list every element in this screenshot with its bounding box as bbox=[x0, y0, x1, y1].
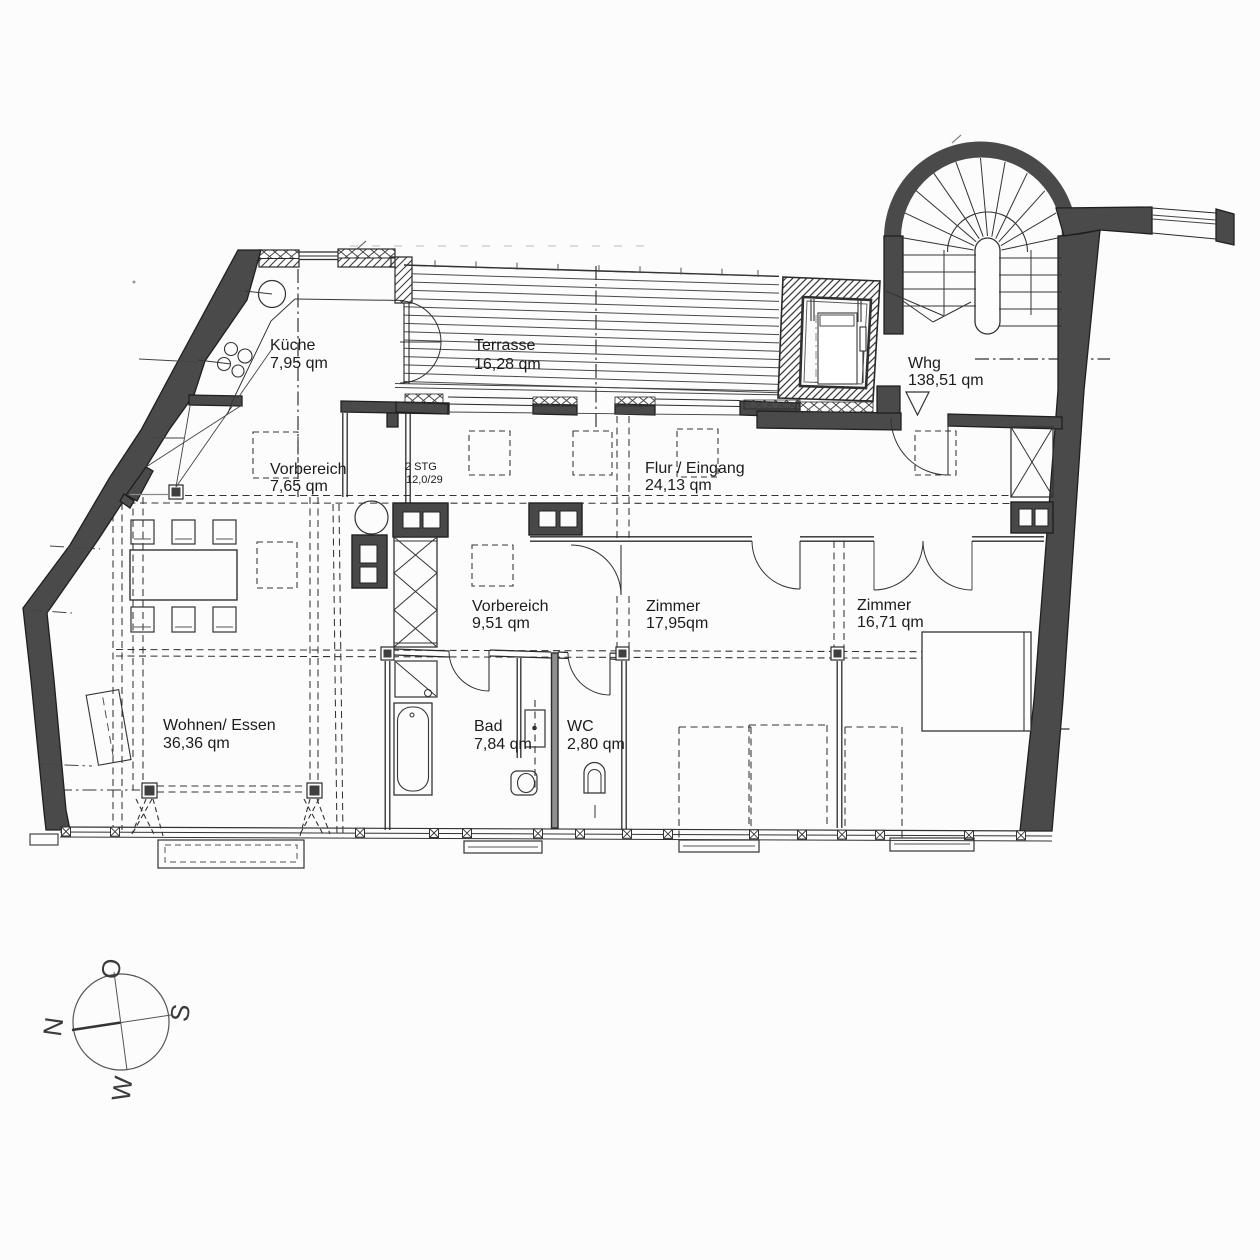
svg-text:Wohnen/ Essen: Wohnen/ Essen bbox=[163, 717, 276, 734]
svg-text:2 STG: 2 STG bbox=[405, 461, 437, 473]
svg-text:Terrasse: Terrasse bbox=[474, 337, 535, 354]
svg-text:Vorbereich: Vorbereich bbox=[472, 598, 549, 615]
svg-text:WC: WC bbox=[567, 718, 594, 735]
svg-text:2,80 qm: 2,80 qm bbox=[567, 736, 625, 753]
svg-text:Flur / Eingang: Flur / Eingang bbox=[645, 460, 745, 477]
svg-text:36,36 qm: 36,36 qm bbox=[163, 735, 230, 752]
svg-text:7,65 qm: 7,65 qm bbox=[270, 478, 328, 495]
svg-text:16,71 qm: 16,71 qm bbox=[857, 614, 924, 631]
svg-text:Zimmer: Zimmer bbox=[646, 598, 701, 615]
svg-text:Zimmer: Zimmer bbox=[857, 597, 912, 614]
svg-text:O: O bbox=[95, 957, 128, 981]
svg-text:17,95qm: 17,95qm bbox=[646, 615, 708, 632]
svg-text:7,95 qm: 7,95 qm bbox=[270, 355, 328, 372]
svg-text:9,51 qm: 9,51 qm bbox=[472, 615, 530, 632]
svg-text:24,13 qm: 24,13 qm bbox=[645, 477, 712, 494]
svg-text:Küche: Küche bbox=[270, 337, 315, 354]
svg-text:12,0/29: 12,0/29 bbox=[406, 474, 443, 486]
svg-text:7,84 qm: 7,84 qm bbox=[474, 736, 532, 753]
svg-text:16,28 qm: 16,28 qm bbox=[474, 356, 541, 373]
svg-text:W: W bbox=[106, 1074, 139, 1103]
svg-text:Vorbereich: Vorbereich bbox=[270, 461, 347, 478]
svg-text:Whg: Whg bbox=[908, 355, 941, 372]
svg-text:138,51 qm: 138,51 qm bbox=[908, 372, 984, 389]
svg-text:Bad: Bad bbox=[474, 718, 502, 735]
